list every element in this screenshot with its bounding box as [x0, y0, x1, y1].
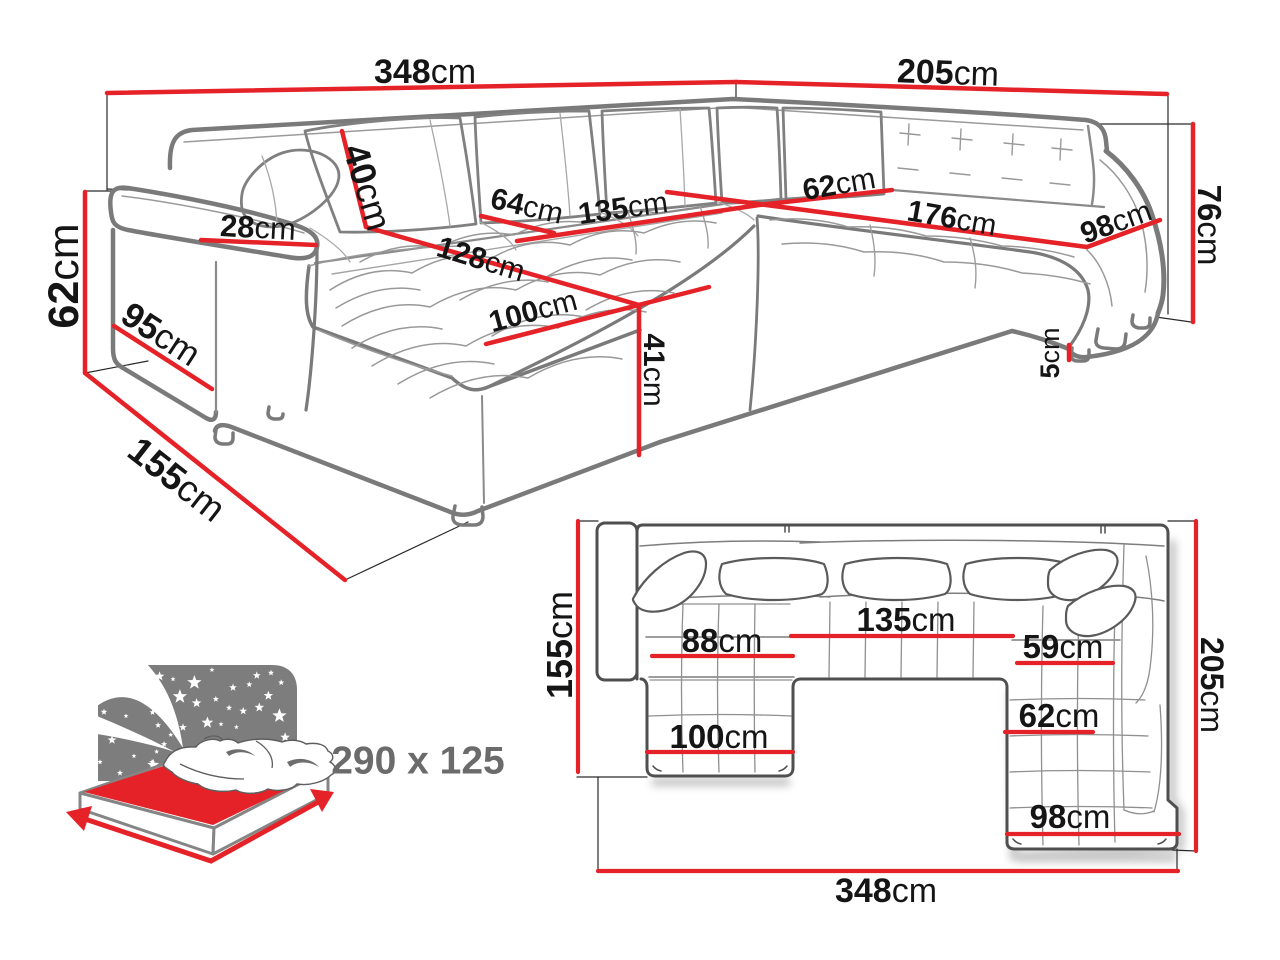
svg-text:155cm: 155cm	[539, 591, 580, 699]
svg-text:5cm: 5cm	[1035, 327, 1065, 378]
svg-text:98cm: 98cm	[1030, 798, 1111, 835]
svg-text:348cm: 348cm	[374, 53, 476, 91]
svg-text:348cm: 348cm	[835, 872, 937, 910]
svg-text:135cm: 135cm	[856, 601, 955, 638]
svg-text:41cm: 41cm	[638, 333, 671, 406]
svg-text:290 x 125: 290 x 125	[331, 740, 505, 783]
svg-text:205cm: 205cm	[896, 52, 999, 94]
svg-text:62cm: 62cm	[40, 223, 88, 328]
svg-text:28cm: 28cm	[219, 208, 297, 247]
svg-text:76cm: 76cm	[1192, 185, 1229, 266]
svg-text:59cm: 59cm	[1023, 628, 1104, 665]
svg-text:100cm: 100cm	[669, 718, 768, 755]
svg-text:62cm: 62cm	[1019, 697, 1100, 734]
svg-text:88cm: 88cm	[682, 622, 763, 659]
svg-text:205cm: 205cm	[1194, 637, 1230, 733]
